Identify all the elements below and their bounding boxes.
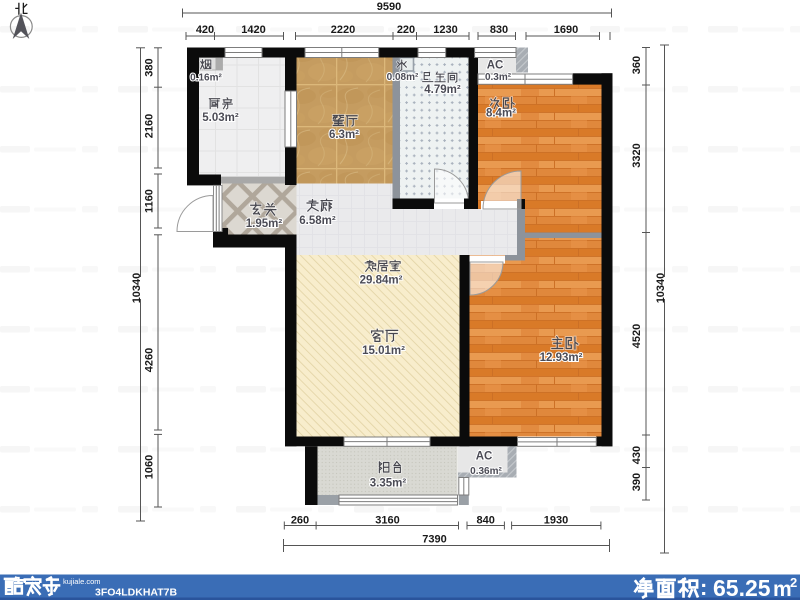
svg-text:4520: 4520	[631, 324, 643, 348]
svg-text:2160: 2160	[144, 114, 156, 138]
svg-text:AC: AC	[476, 451, 493, 463]
svg-text:220: 220	[397, 24, 415, 36]
svg-text:1.95m²: 1.95m²	[246, 218, 283, 230]
svg-text:260: 260	[291, 515, 309, 527]
svg-text:9590: 9590	[377, 1, 401, 13]
svg-text:4.79m²: 4.79m²	[424, 84, 461, 96]
svg-text:AC: AC	[487, 60, 504, 72]
svg-text:1230: 1230	[433, 24, 457, 36]
svg-text::: :	[700, 575, 707, 600]
svg-text:1420: 1420	[241, 24, 265, 36]
svg-text:5.03m²: 5.03m²	[202, 112, 239, 124]
svg-text:0.3m²: 0.3m²	[485, 72, 512, 83]
svg-text:2: 2	[790, 575, 797, 590]
svg-text:4260: 4260	[144, 348, 156, 372]
svg-text:m: m	[773, 578, 792, 600]
svg-text:10340: 10340	[131, 273, 143, 304]
svg-text:1930: 1930	[544, 515, 568, 527]
svg-text:830: 830	[490, 24, 508, 36]
svg-text:430: 430	[631, 446, 643, 464]
svg-text:3.35m²: 3.35m²	[370, 478, 407, 490]
svg-text:7390: 7390	[422, 534, 446, 546]
svg-text:6.58m²: 6.58m²	[299, 215, 336, 227]
svg-text:29.84m²: 29.84m²	[360, 275, 403, 287]
svg-text:380: 380	[144, 58, 156, 76]
svg-text:420: 420	[196, 24, 214, 36]
svg-text:840: 840	[477, 515, 495, 527]
svg-text:0.36m²: 0.36m²	[470, 466, 502, 477]
svg-text:3FO4LDKHAT7B: 3FO4LDKHAT7B	[95, 587, 177, 599]
svg-text:0.08m²: 0.08m²	[387, 72, 419, 83]
svg-text:10340: 10340	[655, 273, 667, 304]
svg-text:3160: 3160	[375, 515, 399, 527]
svg-text:1160: 1160	[144, 189, 156, 213]
svg-text:12.93m²: 12.93m²	[540, 352, 583, 364]
svg-text:6.3m²: 6.3m²	[329, 129, 359, 141]
svg-text:65.25: 65.25	[713, 575, 771, 600]
svg-text:0.16m²: 0.16m²	[190, 73, 222, 84]
svg-text:1690: 1690	[554, 24, 578, 36]
svg-text:kujiale.com: kujiale.com	[63, 577, 101, 586]
svg-text:1060: 1060	[144, 455, 156, 479]
svg-text:2220: 2220	[331, 24, 355, 36]
svg-text:3320: 3320	[631, 143, 643, 167]
svg-text:390: 390	[631, 473, 643, 491]
svg-text:15.01m²: 15.01m²	[362, 345, 405, 357]
svg-text:360: 360	[631, 56, 643, 74]
svg-text:8.4m²: 8.4m²	[486, 108, 516, 120]
